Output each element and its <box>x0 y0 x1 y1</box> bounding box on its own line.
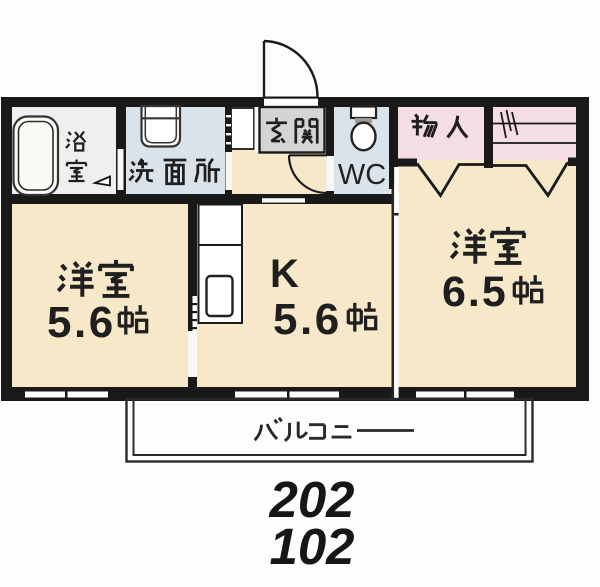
svg-text:K: K <box>270 252 299 296</box>
svg-text:6.5: 6.5 <box>442 268 508 316</box>
svg-text:WC: WC <box>338 159 386 191</box>
svg-text:102: 102 <box>269 518 354 575</box>
svg-text:5.6: 5.6 <box>273 295 342 344</box>
svg-text:5.6: 5.6 <box>47 298 116 347</box>
